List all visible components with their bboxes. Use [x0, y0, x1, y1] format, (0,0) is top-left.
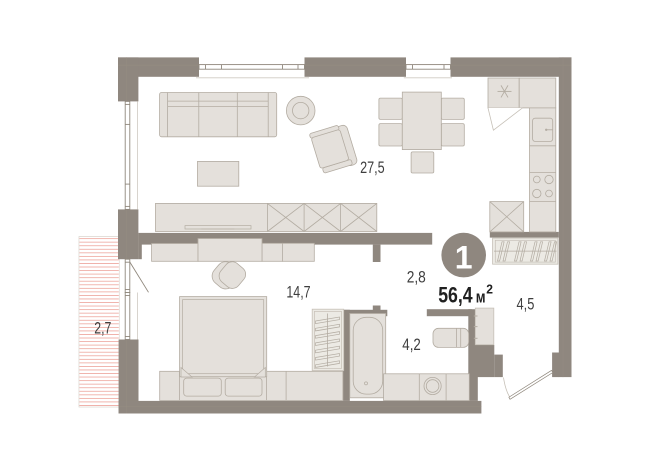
svg-text:14,7: 14,7 — [286, 282, 310, 301]
svg-text:4,5: 4,5 — [517, 294, 535, 313]
svg-text:2: 2 — [486, 283, 493, 297]
svg-text:56,4: 56,4 — [438, 282, 473, 307]
svg-text:2,8: 2,8 — [407, 268, 426, 287]
svg-text:м: м — [476, 287, 486, 306]
svg-text:1: 1 — [455, 239, 473, 275]
svg-text:2,7: 2,7 — [94, 319, 111, 338]
svg-text:4,2: 4,2 — [402, 335, 421, 354]
svg-text:27,5: 27,5 — [360, 158, 385, 177]
